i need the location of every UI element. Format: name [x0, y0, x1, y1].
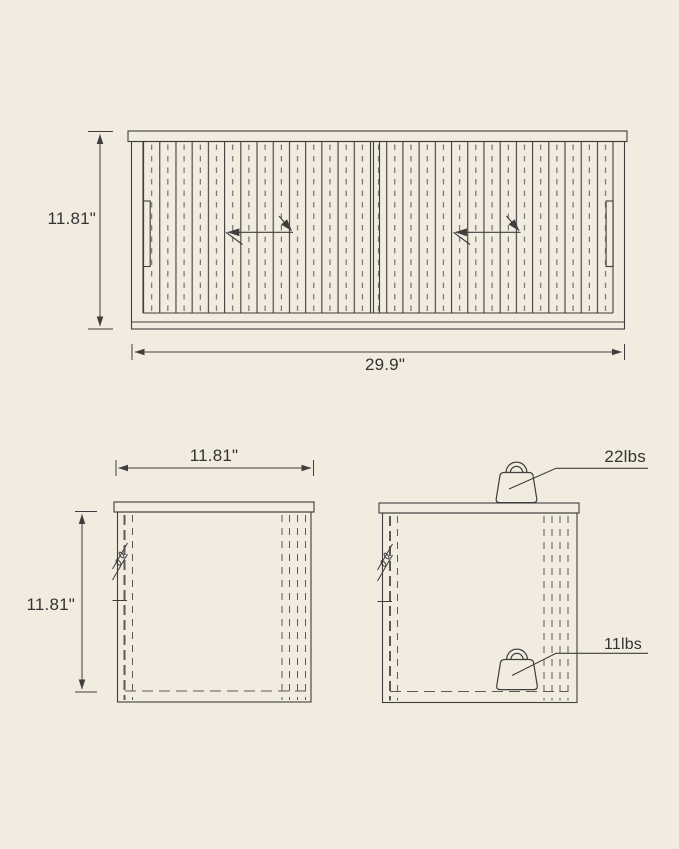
- side-view-top-lid: [114, 502, 314, 512]
- product-dimension-diagram: 11.81" 29.9" 11.81" 11.81" 22lbs 11lbs: [0, 0, 679, 849]
- load-view-top-lid: [379, 503, 579, 513]
- front-width-label: 29.9": [335, 356, 435, 375]
- front-height-label: 11.81": [16, 210, 96, 229]
- diagram-canvas: [0, 0, 679, 849]
- weight-icon: [497, 649, 538, 690]
- side-height-dimension: [75, 512, 97, 693]
- load-view-body: [383, 513, 578, 703]
- weight-icon: [496, 462, 537, 503]
- load-view: [378, 462, 649, 702]
- shelf-load-label: 11lbs: [576, 636, 642, 654]
- front-view: [128, 131, 627, 329]
- side-view: [113, 502, 315, 702]
- front-view-top-lid: [128, 131, 627, 142]
- front-view-slatted-doors: [143, 142, 613, 314]
- side-width-label: 11.81": [164, 447, 264, 466]
- front-height-dimension: [88, 132, 113, 330]
- top-load-label: 22lbs: [576, 448, 646, 467]
- side-height-label: 11.81": [3, 596, 75, 615]
